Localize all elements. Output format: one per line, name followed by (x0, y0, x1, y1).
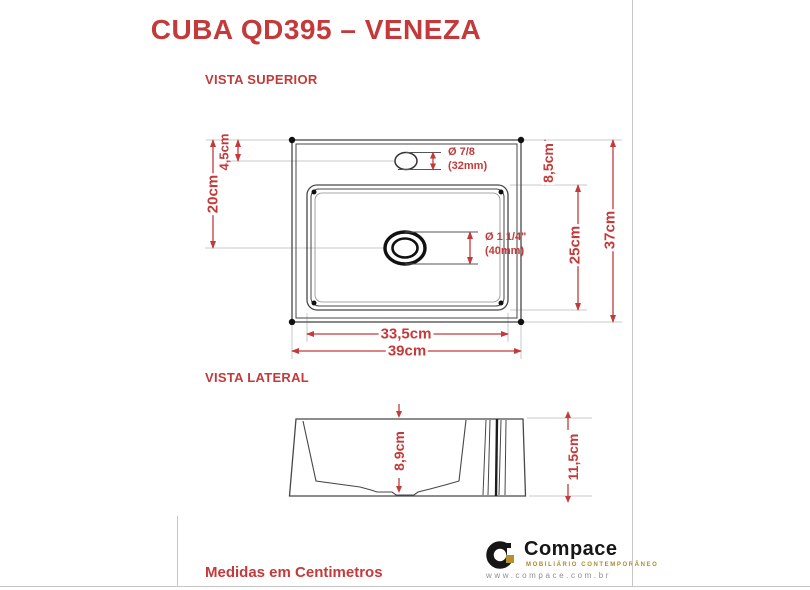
side-view-label: VISTA LATERAL (205, 370, 309, 385)
dim-basin-length: 25cm (568, 224, 583, 266)
product-dimension-sheet: CUBA QD395 – VENEZA VISTA SUPERIOR VISTA… (0, 0, 810, 590)
top-view-label: VISTA SUPERIOR (205, 72, 318, 87)
brand-website: www.compace.com.br (486, 571, 632, 580)
dim-total-width: 39cm (386, 344, 428, 359)
faucet-hole-diameter: Ø 7/8 (448, 146, 487, 160)
units-note: Medidas em Centimetros (205, 564, 383, 581)
faucet-hole-mm: (32mm) (448, 160, 487, 174)
dim-total-depth: 37cm (603, 209, 618, 251)
card-border-right (632, 0, 633, 586)
extension-lines-side-view (527, 418, 592, 496)
drain-hole-annotation: Ø 1 1/4" (40mm) (485, 231, 526, 259)
technical-drawing (0, 0, 810, 590)
drain-hole (385, 232, 478, 264)
compace-logo-icon (486, 540, 516, 570)
dim-faucet-offset: 4,5cm (218, 132, 231, 173)
brand-tagline: MOBILIÁRIO CONTEMPORÂNEO (526, 562, 658, 568)
page-title: CUBA QD395 – VENEZA (0, 14, 632, 46)
brand-name: Compace (524, 538, 618, 561)
dim-inner-depth: 8,9cm (392, 429, 406, 473)
drain-mm: (40mm) (485, 245, 526, 259)
drain-diameter: Ø 1 1/4" (485, 231, 526, 245)
dim-basin-back-offset: 8,5cm (541, 141, 555, 185)
card-border-bottom (0, 586, 810, 587)
card-border-left (177, 516, 178, 586)
dim-total-height: 11,5cm (566, 432, 580, 483)
dim-basin-width: 33,5cm (379, 327, 434, 342)
faucet-hole-annotation: Ø 7/8 (32mm) (448, 146, 487, 174)
side-view-drawing (290, 404, 593, 503)
dim-drain-offset: 20cm (206, 173, 221, 215)
brand-logo: Compace MOBILIÁRIO CONTEMPORÂNEO www.com… (486, 537, 632, 581)
